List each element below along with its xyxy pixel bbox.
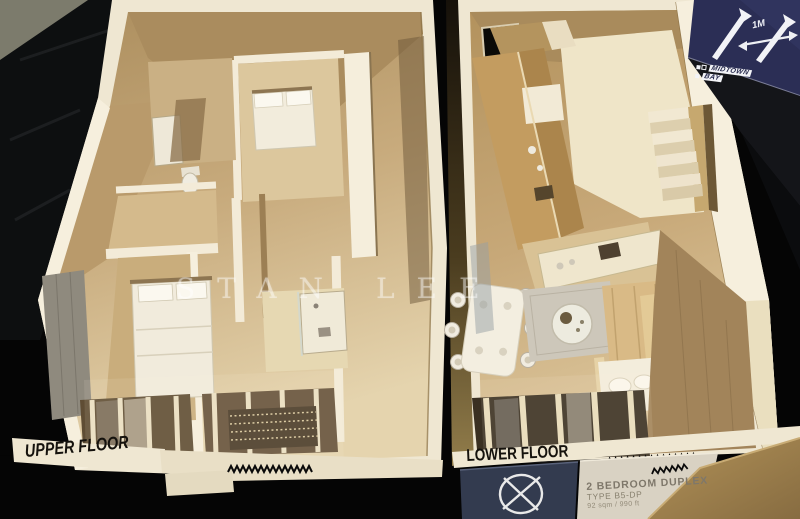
watermark: STAN LEE (176, 272, 501, 305)
architectural-model-photo: STAN LEE UPPER FLOOR LOWER FLOOR 2 BEDRO… (0, 0, 800, 519)
base-tab (165, 470, 234, 496)
logo-square-icon (696, 64, 700, 68)
bed2 (252, 88, 316, 150)
coffee-table (552, 304, 592, 344)
logo-square-icon (695, 73, 699, 77)
logo-square-icon (701, 65, 707, 71)
brand-name-bottom: BAY (701, 73, 723, 82)
